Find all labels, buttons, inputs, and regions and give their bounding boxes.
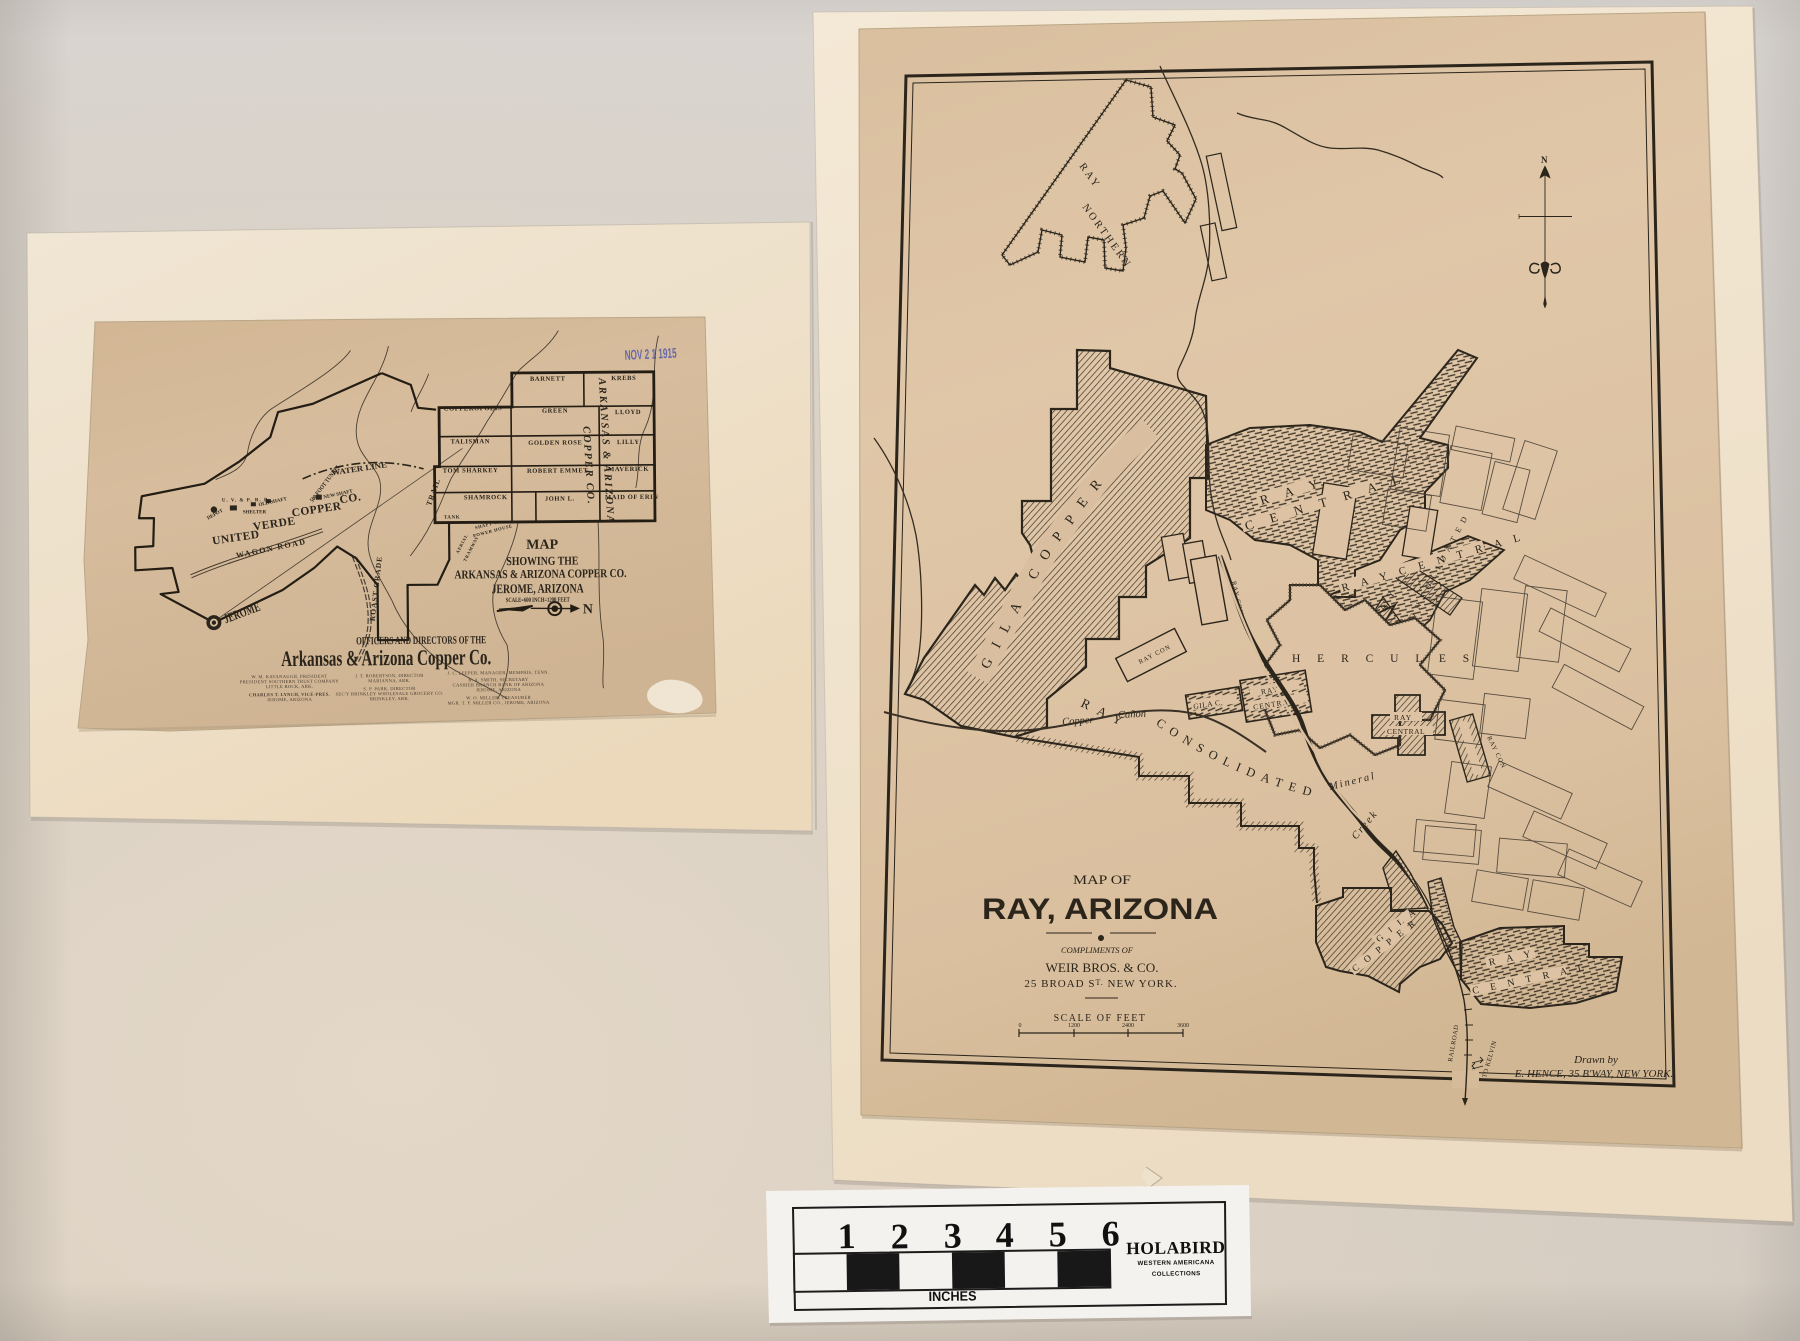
svg-text:COMPLIMENTS OF: COMPLIMENTS OF: [1061, 945, 1134, 955]
svg-text:ROBERT EMMET: ROBERT EMMET: [527, 467, 588, 475]
svg-text:3: 3: [943, 1216, 962, 1256]
svg-text:RAY: RAY: [1394, 713, 1412, 722]
svg-text:COPPEROPOLIS: COPPEROPOLIS: [444, 405, 503, 413]
svg-text:Cañon: Cañon: [1118, 709, 1147, 721]
svg-text:MAVERICK: MAVERICK: [608, 466, 649, 473]
svg-text:2: 2: [890, 1216, 909, 1256]
svg-text:GREEN: GREEN: [542, 408, 568, 415]
svg-text:4: 4: [995, 1215, 1014, 1255]
svg-text:2400: 2400: [1122, 1023, 1134, 1029]
svg-text:Copper: Copper: [1062, 715, 1095, 728]
svg-text:5: 5: [1048, 1214, 1067, 1254]
svg-text:GOLDEN ROSE: GOLDEN ROSE: [528, 439, 582, 446]
svg-text:SHAMROCK: SHAMROCK: [464, 494, 508, 501]
svg-text:WEIR BROS. & CO.: WEIR BROS. & CO.: [1046, 961, 1159, 975]
svg-text:Drawn by: Drawn by: [1573, 1054, 1618, 1066]
svg-text:HOLABIRD: HOLABIRD: [1126, 1237, 1226, 1258]
svg-text:Arkansas & Arizona Copper Co.: Arkansas & Arizona Copper Co.: [281, 644, 491, 671]
svg-text:N: N: [583, 602, 593, 617]
svg-text:3600: 3600: [1177, 1023, 1189, 1029]
svg-text:KREBS: KREBS: [611, 375, 636, 382]
svg-text:1: 1: [837, 1216, 856, 1256]
svg-text:SCALE=600 INCH=1200 FEET: SCALE=600 INCH=1200 FEET: [506, 597, 571, 605]
svg-text:TALISMAN: TALISMAN: [451, 438, 490, 445]
svg-text:MAP OF: MAP OF: [1073, 873, 1131, 887]
svg-text:SHELTER: SHELTER: [243, 510, 267, 515]
svg-text:LILLY: LILLY: [617, 439, 640, 446]
svg-text:JOHN L.: JOHN L.: [545, 495, 575, 502]
svg-text:INCHES: INCHES: [928, 1288, 976, 1304]
svg-text:H E R C U L E S: H E R C U L E S: [1292, 653, 1476, 665]
svg-text:1200: 1200: [1068, 1023, 1080, 1029]
svg-text:0: 0: [1019, 1023, 1022, 1029]
svg-text:E. HENCE, 35 B'WAY, NEW YORK.: E. HENCE, 35 B'WAY, NEW YORK.: [1514, 1068, 1674, 1080]
svg-text:TOM SHARKEY: TOM SHARKEY: [443, 467, 499, 474]
svg-text:COLLECTIONS: COLLECTIONS: [1152, 1270, 1201, 1278]
svg-text:TANK: TANK: [444, 515, 461, 520]
svg-text:BARNETT: BARNETT: [530, 376, 566, 383]
svg-text:NOV 2 1 1915: NOV 2 1 1915: [624, 345, 677, 363]
svg-text:N: N: [1541, 155, 1548, 165]
svg-text:JEROME, ARIZONA: JEROME, ARIZONA: [492, 580, 585, 596]
svg-text:MAP: MAP: [526, 538, 558, 553]
svg-text:ARKANSAS & ARIZONA COPPER CO: ARKANSAS & ARIZONA COPPER CO.: [454, 566, 626, 582]
svg-text:6: 6: [1101, 1213, 1120, 1253]
svg-text:RAY, ARIZONA: RAY, ARIZONA: [982, 893, 1218, 926]
svg-text:WESTERN AMERICANA: WESTERN AMERICANA: [1137, 1259, 1214, 1267]
svg-text:LLOYD: LLOYD: [615, 409, 641, 416]
svg-text:CENTRAL: CENTRAL: [1387, 727, 1425, 736]
